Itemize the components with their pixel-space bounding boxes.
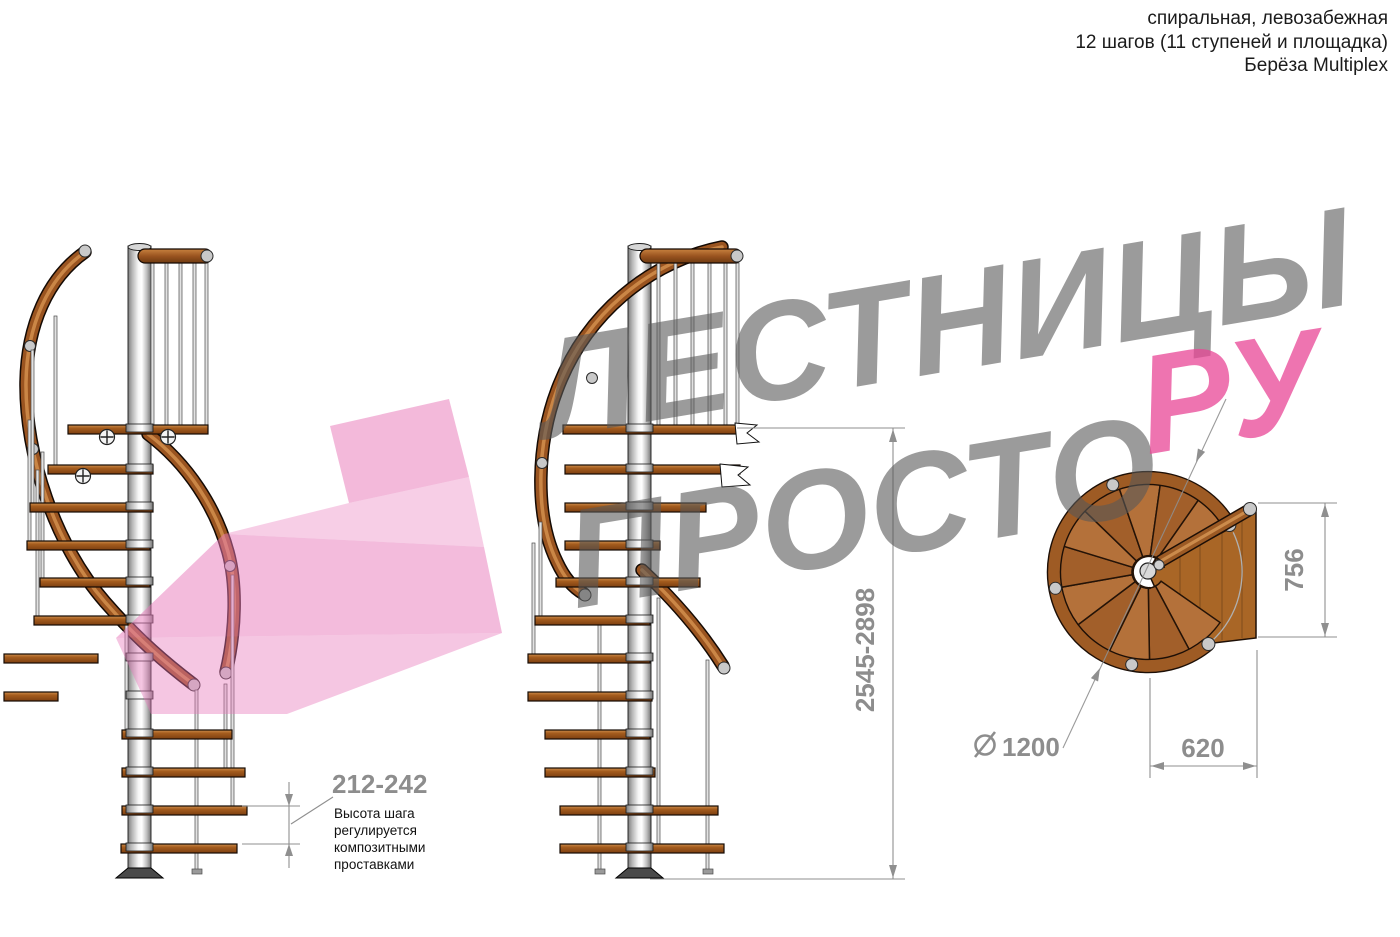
svg-text:регулируется: регулируется [334,823,417,838]
title-line-material: Берёза Multiplex [1075,54,1388,78]
drawing-page: 212-242 Высота шага регулируется компози… [0,0,1400,937]
title-line-steps: 12 шагов (11 ступеней и площадка) [1075,31,1388,55]
total-height-value: 2545-2898 [850,588,880,712]
diameter-value: 1200 [1002,732,1060,762]
watermark-arrow [116,399,502,714]
svg-text:проставками: проставками [334,857,414,872]
side-view [528,244,759,879]
svg-text:Высота шага: Высота шага [334,806,415,821]
plan-width-value: 620 [1181,733,1224,763]
svg-text:композитными: композитными [334,840,425,855]
diameter-symbol-icon [975,732,995,757]
plan-depth-value: 756 [1279,548,1309,591]
front-pole [116,244,163,879]
staircase-drawing: 212-242 Высота шага регулируется компози… [0,0,1400,937]
title-block: спиральная, левозабежная 12 шагов (11 ст… [1075,7,1388,78]
step-height-note: Высота шага регулируется композитными пр… [334,806,425,872]
dim-plan-depth: 756 [1258,503,1337,637]
front-mount-discs [76,430,176,484]
dim-step-height: 212-242 Высота шага регулируется компози… [242,769,427,872]
title-line-type: спиральная, левозабежная [1075,7,1388,31]
step-height-value: 212-242 [332,769,427,799]
side-pole [616,244,663,879]
top-view [1047,472,1256,673]
